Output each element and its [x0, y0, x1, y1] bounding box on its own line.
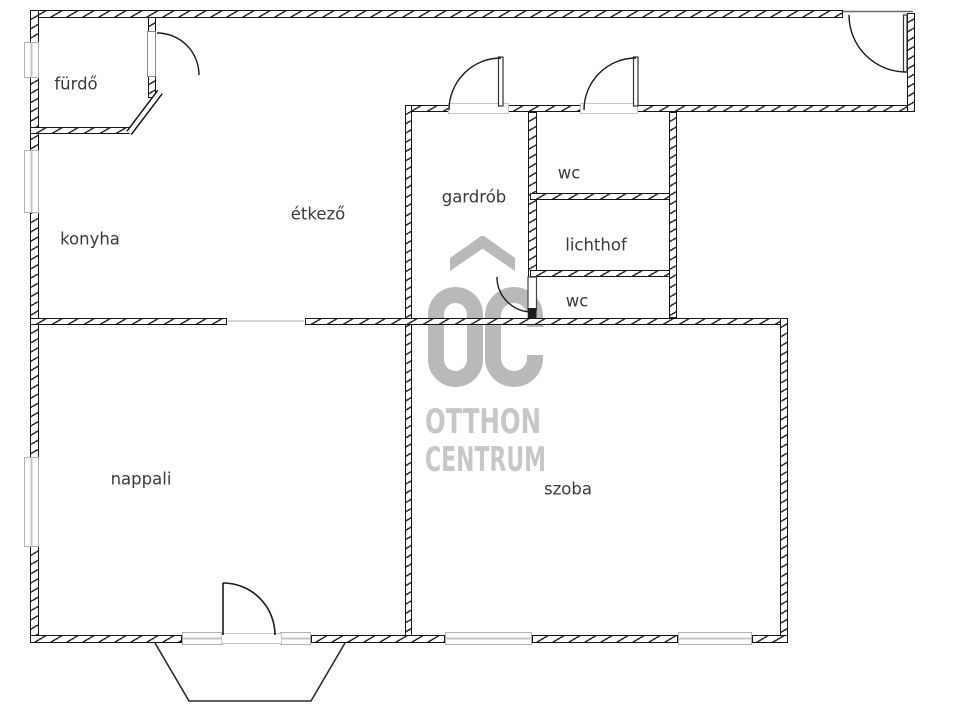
wall-wc-column-right [669, 112, 677, 318]
wall-furdo-chamfer [129, 92, 160, 133]
window-balcony-right [280, 632, 311, 645]
wall-furdo-right-b [148, 75, 156, 98]
room-label-wc-bottom: wc [566, 292, 589, 311]
wall-hall-bottom-c [637, 105, 915, 112]
window-szoba-right [678, 632, 752, 645]
wall-right-corridor [907, 13, 915, 112]
wall-middle-a [30, 318, 227, 325]
sill-gardrob-door [448, 103, 509, 114]
wall-bottom-b [311, 635, 445, 643]
room-label-furdo: fürdő [54, 75, 97, 94]
watermark-line1: OTTHON [425, 402, 541, 442]
wall-lichthof-wc [530, 270, 677, 277]
window-balcony-left [182, 632, 223, 645]
room-label-nappali: nappali [111, 470, 172, 489]
wall-bottom-c [532, 635, 678, 643]
wall-hall-bottom-b [507, 105, 582, 112]
wall-furdo-right-a [148, 17, 156, 33]
room-label-lichthof: lichthof [565, 236, 627, 255]
wall-middle-b [305, 318, 788, 325]
wall-left [30, 10, 39, 643]
wall-szoba-right [780, 318, 788, 643]
room-label-gardrob: gardrób [442, 188, 507, 207]
door-balcony [223, 583, 275, 635]
watermark-roof-icon [450, 236, 515, 271]
room-label-szoba: szoba [544, 480, 592, 499]
wall-gardrob-left [405, 105, 412, 643]
window-furdo-left [24, 42, 39, 78]
room-label-wc-top: wc [558, 164, 581, 183]
window-nappali-left [24, 457, 39, 547]
wall-furdo-bottom [30, 127, 133, 134]
sill-balcony-door [221, 633, 282, 644]
floor-plan: OTTHON CENTRUM [0, 0, 970, 713]
window-szoba-left [445, 632, 532, 645]
door-entrance [849, 15, 907, 72]
wall-bottom-a [30, 635, 182, 643]
wall-wc-lichthof [530, 193, 677, 200]
watermark-letter-o [436, 295, 475, 379]
room-label-konyha: konyha [60, 230, 120, 249]
door-furdo [148, 32, 200, 77]
room-label-etkezo: étkező [291, 205, 346, 224]
balcony-outline [155, 643, 345, 701]
wall-bottom-d [752, 635, 788, 643]
watermark-line2: CENTRUM [425, 440, 546, 480]
sill-wc-door [580, 103, 638, 114]
window-konyha-left [24, 150, 39, 213]
watermark-letter-c [493, 295, 535, 379]
door-wc-bottom [497, 277, 537, 318]
